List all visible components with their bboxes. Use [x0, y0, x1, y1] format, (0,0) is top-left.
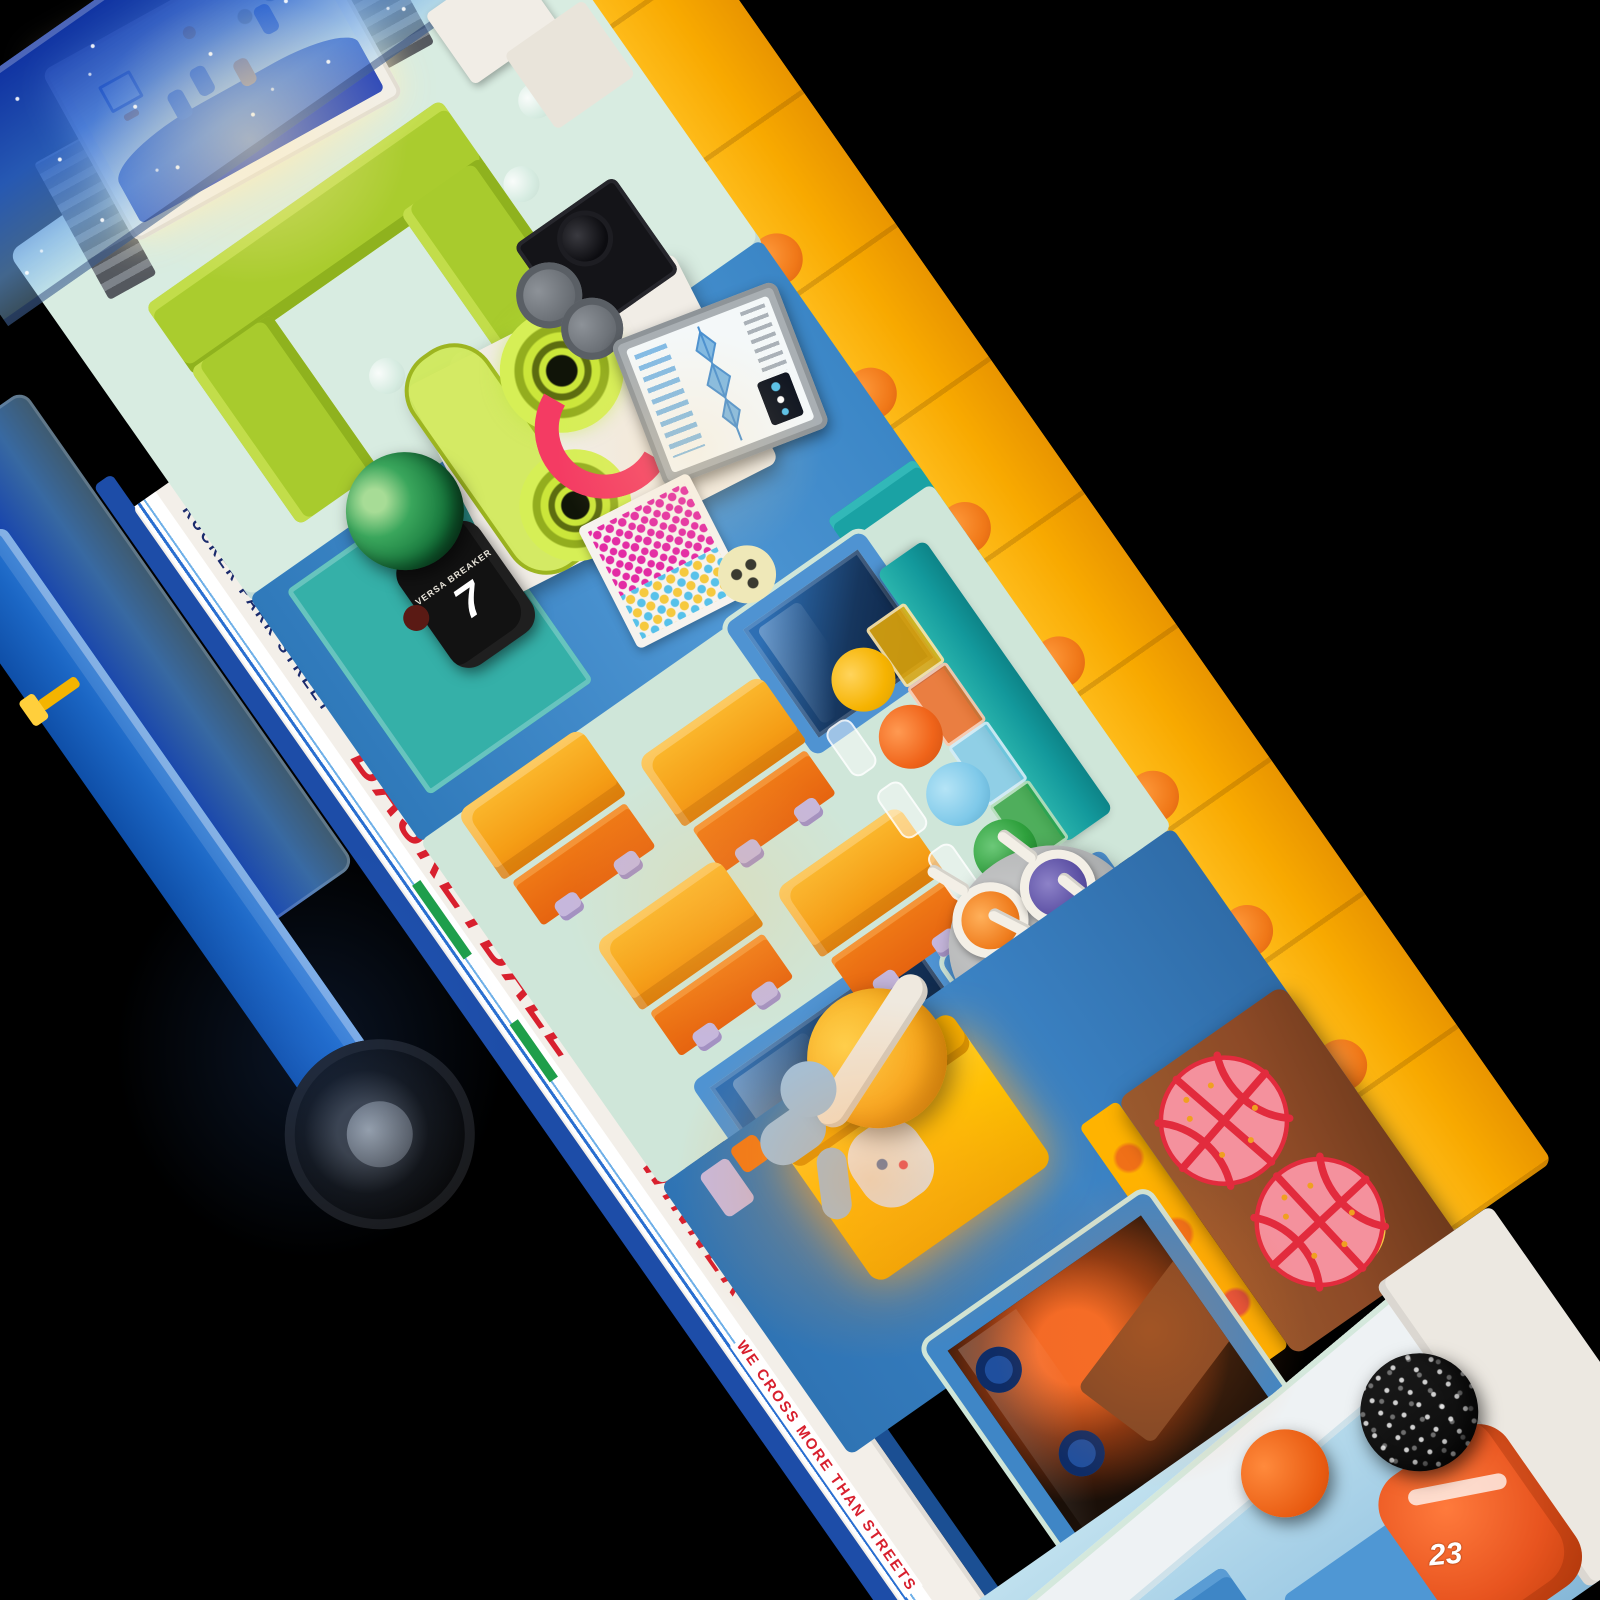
- player-jersey-number: 23: [1427, 1537, 1463, 1574]
- photo-stage: RUCKER PARK STREET BASKETBALL WINNER WE …: [0, 0, 1600, 1600]
- monitor-dash-column: [740, 303, 789, 378]
- bus-body: RUCKER PARK STREET BASKETBALL WINNER WE …: [0, 0, 1600, 1600]
- jersey-trim: [1407, 1472, 1508, 1507]
